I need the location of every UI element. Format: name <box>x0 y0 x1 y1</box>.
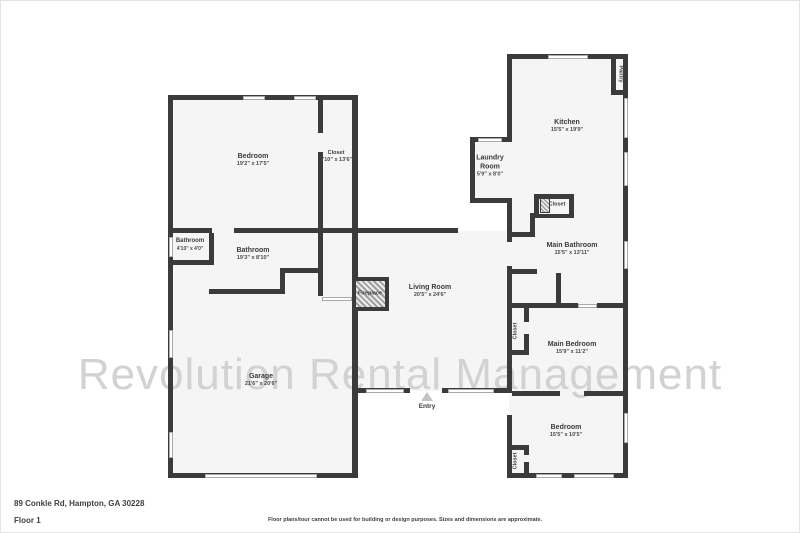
wall-segment <box>512 303 578 308</box>
window-opening <box>624 413 628 443</box>
room-label-garage: Garage 21'6" x 20'6" <box>245 372 277 388</box>
window-opening <box>169 237 173 257</box>
wall-segment <box>168 228 212 233</box>
window-opening <box>243 96 265 100</box>
wall-segment <box>234 228 358 233</box>
room-dims: 19'3" x 8'10" <box>236 255 269 262</box>
wall-segment <box>524 308 529 322</box>
window-opening <box>478 138 502 142</box>
room-label-main-bedroom: Main Bedroom 15'9" x 11'2" <box>548 340 597 356</box>
wall-segment <box>358 228 458 233</box>
entry-arrow-icon <box>421 392 433 401</box>
window-opening <box>624 241 628 269</box>
room-dims: 19'2" x 17'5" <box>237 161 269 168</box>
wall-segment <box>318 233 323 296</box>
window-opening <box>624 98 628 138</box>
room-name: Bathroom <box>176 238 204 246</box>
wall-segment <box>512 232 534 237</box>
wall-segment <box>470 198 512 203</box>
room-label-living-room: Living Room 20'5" x 24'6" <box>409 283 451 299</box>
window-opening <box>294 96 316 100</box>
room-label-closet-1: Closet 2'10" x 13'6" <box>320 150 352 164</box>
wall-segment <box>556 273 561 305</box>
room-name: Closet <box>549 201 566 208</box>
room-dims: 15'5" x 13'11" <box>547 250 598 257</box>
room-label-closet-kitchen: Closet <box>549 201 566 208</box>
wall-segment <box>209 233 214 262</box>
room-name: Living Room <box>409 283 451 292</box>
wall-segment <box>524 445 529 455</box>
room-name: Kitchen <box>551 118 583 127</box>
room-dims: 5'9" x 8'0" <box>469 172 511 179</box>
wall-segment <box>168 260 214 265</box>
room-dims: 15'5" x 10'5" <box>550 432 582 439</box>
wall-segment <box>168 95 173 478</box>
room-label-laundry: Laundry Room 5'9" x 8'0" <box>469 153 511 178</box>
room-label-bathroom-2: Bathroom 19'3" x 8'10" <box>236 246 269 262</box>
window-opening <box>169 330 173 358</box>
wall-segment <box>507 350 529 355</box>
room-dims: 4'10" x 4'0" <box>176 246 204 253</box>
window-opening <box>536 474 562 478</box>
window-opening <box>322 297 352 301</box>
window-opening <box>578 304 597 308</box>
room-name: Garage <box>245 372 277 381</box>
room-name: Bedroom <box>237 152 269 161</box>
window-opening <box>448 389 494 393</box>
wall-segment <box>318 152 323 233</box>
room-label-main-bathroom: Main Bathroom 15'5" x 13'11" <box>547 241 598 257</box>
room-name: Pantry <box>616 65 623 82</box>
wall-segment <box>611 90 628 95</box>
wall-segment <box>534 214 574 218</box>
room-dims: 15'5" x 19'9" <box>551 127 583 134</box>
wall-segment <box>524 462 529 478</box>
room-label-bathroom-1: Bathroom 4'10" x 4'0" <box>176 238 204 252</box>
room-label-bedroom-1: Bedroom 19'2" x 17'5" <box>237 152 269 168</box>
room-label-closet-main-bedroom: Closet <box>512 323 519 340</box>
floor-number: Floor 1 <box>14 516 41 525</box>
room-name: Closet <box>512 323 519 340</box>
room-label-bedroom-2: Bedroom 15'5" x 10'5" <box>550 423 582 439</box>
entry-text: Entry <box>419 403 436 411</box>
room-label-pantry: Pantry <box>616 65 623 82</box>
room-name: Main Bathroom <box>547 241 598 250</box>
room-dims: 15'9" x 11'2" <box>548 349 597 356</box>
wall-segment <box>611 54 616 94</box>
room-label-kitchen: Kitchen 15'5" x 19'9" <box>551 118 583 134</box>
room-name: Fireplace <box>358 290 382 297</box>
window-opening <box>366 389 404 393</box>
entry-label: Entry <box>419 403 436 411</box>
wall-segment <box>507 266 512 393</box>
room-name: Closet <box>320 150 352 157</box>
room-dims: 20'5" x 24'6" <box>409 292 451 299</box>
window-opening <box>574 474 614 478</box>
room-name: Main Bedroom <box>548 340 597 349</box>
wall-segment <box>209 289 285 294</box>
window-opening <box>205 474 317 478</box>
property-address: 89 Conkle Rd, Hampton, GA 30228 <box>14 499 144 508</box>
floor-plan-page: Revolution Rental Management Bedroom 19'… <box>0 0 800 533</box>
window-opening <box>624 152 628 186</box>
disclaimer-text: Floor plans/tour cannot be used for buil… <box>268 517 542 523</box>
room-name: Laundry Room <box>469 153 511 171</box>
room-dims: 21'6" x 20'6" <box>245 381 277 388</box>
wall-segment <box>512 391 560 396</box>
room-label-fireplace: Fireplace <box>358 290 382 297</box>
room-dims: 2'10" x 13'6" <box>320 157 352 164</box>
room-name: Bedroom <box>550 423 582 432</box>
wall-segment <box>509 269 537 274</box>
wall-segment <box>584 391 628 396</box>
room-name: Bathroom <box>236 246 269 255</box>
room-name: Closet <box>512 453 519 470</box>
wall-segment <box>597 303 628 308</box>
wall-segment <box>507 54 512 142</box>
window-opening <box>548 55 588 59</box>
room-label-closet-bedroom-2: Closet <box>512 453 519 470</box>
wall-segment <box>285 268 318 273</box>
window-opening <box>169 432 173 458</box>
wall-segment <box>318 99 323 133</box>
